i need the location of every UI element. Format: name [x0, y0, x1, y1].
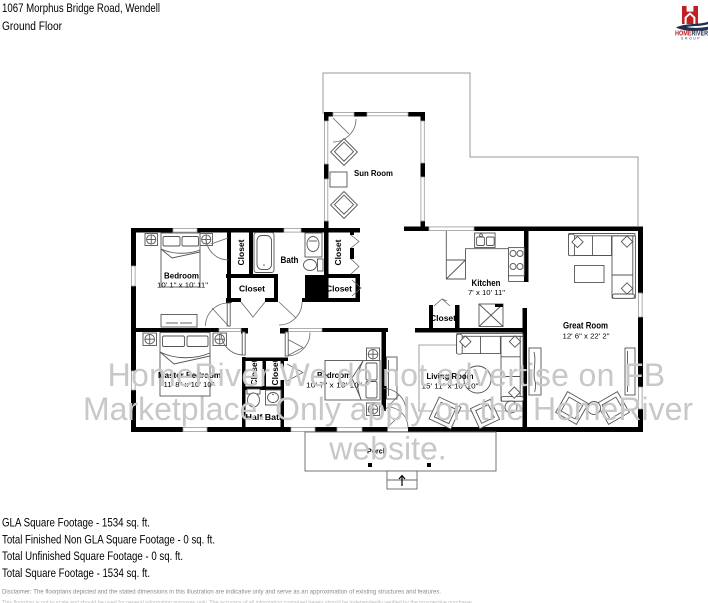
svg-text:Marketplace. Only apply on the: Marketplace. Only apply on the HomeRiver	[83, 391, 693, 427]
svg-text:12' 6" x 22' 2": 12' 6" x 22' 2"	[563, 331, 610, 340]
svg-text:Total Square Footage - 1534 sq: Total Square Footage - 1534 sq. ft.	[2, 566, 150, 580]
svg-text:Kitchen: Kitchen	[472, 278, 501, 288]
svg-text:10' 1" x 10' 11": 10' 1" x 10' 11"	[157, 281, 208, 290]
svg-text:Closet: Closet	[237, 239, 246, 265]
svg-text:GROUP: GROUP	[681, 37, 701, 41]
svg-text:Great Room: Great Room	[563, 321, 608, 331]
svg-text:Bedroom: Bedroom	[164, 272, 199, 281]
svg-text:Sun Room: Sun Room	[354, 169, 393, 178]
svg-text:website.: website.	[328, 431, 446, 467]
svg-text:Ground Floor: Ground Floor	[2, 19, 62, 33]
svg-text:Disclaimer: The floorplans dep: Disclaimer: The floorplans depicted and …	[2, 589, 441, 596]
svg-text:Total Unfinished Square Footag: Total Unfinished Square Footage - 0 sq. …	[2, 549, 183, 563]
svg-text:1067 Morphus Bridge Road, Wend: 1067 Morphus Bridge Road, Wendell	[2, 1, 160, 15]
svg-text:GLA Square Footage - 1534 sq.: GLA Square Footage - 1534 sq. ft.	[2, 516, 150, 530]
svg-text:Closet: Closet	[430, 314, 456, 323]
svg-text:Closet: Closet	[334, 239, 343, 265]
svg-text:HomeRiver We do not advertise: HomeRiver We do not advertise on FB	[108, 357, 666, 393]
svg-text:7' x 10' 11": 7' x 10' 11"	[468, 288, 505, 297]
svg-text:Bath: Bath	[281, 255, 299, 265]
svg-text:Total Finished Non GLA Square: Total Finished Non GLA Square Footage - …	[2, 532, 215, 546]
svg-text:This floorplan is not to scale: This floorplan is not to scale and shoul…	[2, 600, 473, 603]
svg-text:Closet: Closet	[239, 285, 265, 294]
svg-text:Closet: Closet	[326, 285, 352, 294]
